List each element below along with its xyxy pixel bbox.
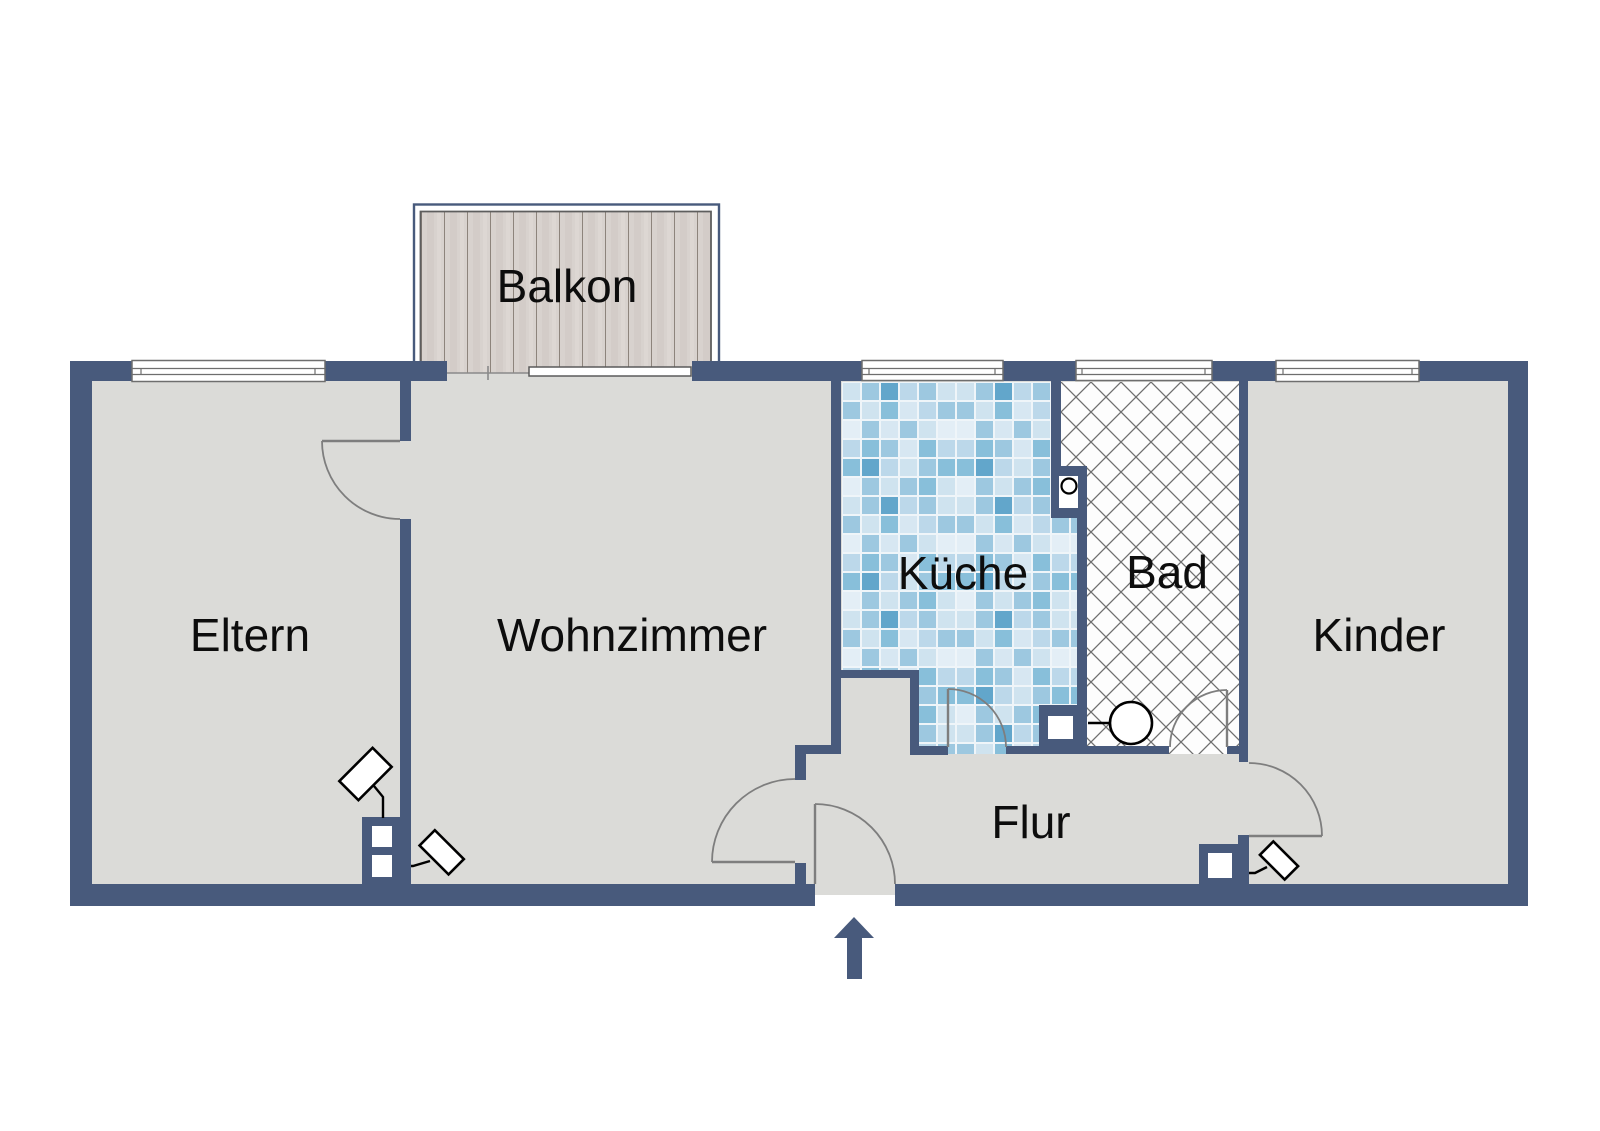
svg-text:Wohnzimmer: Wohnzimmer [497,609,767,661]
svg-text:Eltern: Eltern [190,609,310,661]
svg-text:Küche: Küche [898,547,1028,599]
svg-text:Kinder: Kinder [1313,609,1446,661]
svg-text:Bad: Bad [1126,546,1208,598]
svg-text:Flur: Flur [991,796,1070,848]
svg-text:Balkon: Balkon [497,260,638,312]
